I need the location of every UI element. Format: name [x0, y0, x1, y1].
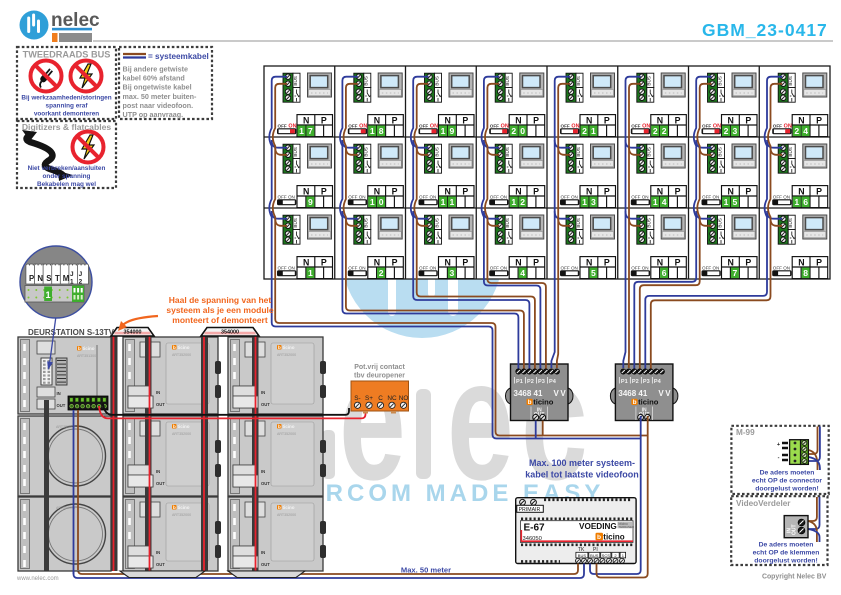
svg-text:ticino: ticino: [283, 345, 295, 350]
svg-text:OUT: OUT: [156, 562, 165, 567]
svg-text:IN: IN: [261, 390, 265, 395]
svg-text:ticino: ticino: [533, 397, 554, 406]
svg-text:IN: IN: [156, 550, 160, 555]
svg-text:N: N: [798, 258, 804, 268]
svg-text:OFF ON: OFF ON: [348, 265, 365, 270]
svg-text:BUS: BUS: [576, 218, 581, 227]
svg-text:echt OP de connector: echt OP de connector: [752, 478, 822, 485]
svg-text:P: P: [462, 187, 468, 197]
svg-text:N: N: [515, 258, 521, 268]
svg-text:P: P: [604, 258, 610, 268]
svg-text:2: 2: [794, 126, 799, 136]
svg-text:GBM_23-0417: GBM_23-0417: [702, 20, 828, 40]
svg-text:OFF ON: OFF ON: [419, 194, 436, 199]
svg-text:IN: IN: [261, 469, 265, 474]
svg-text:BUS: BUS: [434, 218, 439, 227]
svg-text:BUS: BUS: [576, 147, 581, 156]
svg-text:OFF: OFF: [561, 123, 570, 128]
svg-text:7: 7: [733, 268, 738, 278]
svg-text:6: 6: [803, 197, 808, 207]
svg-text:4: 4: [520, 268, 525, 278]
svg-text:N: N: [303, 258, 309, 268]
svg-text:OFF ON: OFF ON: [702, 265, 719, 270]
svg-text:echt OP de klemmen: echt OP de klemmen: [753, 550, 820, 557]
svg-text:b: b: [173, 345, 176, 350]
svg-text:354000: 354000: [221, 329, 239, 335]
svg-text:P: P: [462, 116, 468, 126]
svg-text:4: 4: [803, 126, 808, 136]
svg-text:ART351300: ART351300: [77, 354, 96, 358]
svg-text:ticino: ticino: [603, 532, 624, 541]
svg-text:IN: IN: [57, 391, 61, 396]
svg-text:4: 4: [662, 197, 667, 207]
svg-text:N: N: [798, 116, 804, 126]
svg-text:P: P: [675, 258, 681, 268]
svg-text:1: 1: [370, 197, 375, 207]
svg-text:OFF ON: OFF ON: [490, 194, 507, 199]
svg-text:P: P: [816, 116, 822, 126]
svg-text:2: 2: [653, 126, 658, 136]
svg-text:www.nelec.com: www.nelec.com: [16, 576, 59, 582]
svg-text:P3: P3: [643, 379, 650, 385]
svg-text:+: +: [777, 442, 780, 448]
svg-text:N: N: [657, 187, 663, 197]
svg-text:2: 2: [724, 126, 729, 136]
svg-text:ticino: ticino: [283, 424, 295, 429]
svg-text:ticino: ticino: [283, 505, 295, 510]
svg-text:BUS: BUS: [647, 76, 652, 85]
svg-text:VV: VV: [658, 389, 672, 398]
svg-text:ART352000: ART352000: [172, 513, 191, 517]
svg-text:OFF: OFF: [419, 123, 428, 128]
svg-text:P: P: [321, 258, 327, 268]
svg-text:TWEEDRAADS BUS: TWEEDRAADS BUS: [23, 50, 111, 60]
svg-text:N: N: [37, 274, 43, 283]
svg-text:VV: VV: [554, 389, 568, 398]
svg-text:OUT: OUT: [792, 524, 798, 535]
svg-text:b: b: [278, 345, 281, 350]
svg-text:VideoVerdeler: VideoVerdeler: [736, 499, 791, 508]
svg-text:UTP op aanvraag.: UTP op aanvraag.: [123, 110, 184, 119]
svg-text:OUT: OUT: [261, 481, 270, 486]
svg-text:S-: S-: [354, 395, 360, 402]
svg-text:N: N: [445, 116, 451, 126]
svg-text:P: P: [321, 116, 327, 126]
svg-text:BUS: BUS: [364, 76, 369, 85]
svg-text:BUS: BUS: [788, 218, 793, 227]
svg-text:ticino: ticino: [178, 424, 190, 429]
svg-text:BUS: BUS: [576, 76, 581, 85]
svg-text:P4: P4: [549, 379, 557, 385]
svg-text:BUS: BUS: [434, 76, 439, 85]
svg-text:BUS: BUS: [717, 218, 722, 227]
svg-text:PRIMAIR: PRIMAIR: [519, 507, 541, 513]
svg-text:b: b: [173, 505, 176, 510]
svg-text:P4: P4: [654, 379, 662, 385]
svg-text:OFF ON: OFF ON: [348, 194, 365, 199]
svg-text:systeem als je een module: systeem als je een module: [166, 305, 274, 315]
svg-text:OFF ON: OFF ON: [773, 194, 790, 199]
svg-text:Bekabelen mag wel: Bekabelen mag wel: [37, 181, 96, 188]
svg-text:S: S: [46, 274, 51, 283]
svg-text:N: N: [374, 116, 380, 126]
svg-text:BUS: BUS: [578, 553, 587, 558]
svg-text:N: N: [445, 258, 451, 268]
svg-text:N: N: [515, 116, 521, 126]
svg-text:BUS: BUS: [505, 218, 510, 227]
svg-text:OFF: OFF: [773, 123, 782, 128]
svg-text:b: b: [173, 424, 176, 429]
svg-text:P: P: [392, 258, 398, 268]
svg-text:P: P: [816, 187, 822, 197]
svg-text:monteert of demonteert: monteert of demonteert: [172, 315, 268, 325]
svg-text:P: P: [745, 187, 751, 197]
svg-text:-: -: [778, 455, 780, 461]
svg-text:OFF ON: OFF ON: [490, 265, 507, 270]
svg-text:IN: IN: [261, 550, 265, 555]
svg-text:P: P: [533, 116, 539, 126]
svg-text:BUS: BUS: [647, 218, 652, 227]
svg-text:1: 1: [441, 126, 446, 136]
svg-text:6: 6: [662, 268, 667, 278]
svg-text:1: 1: [511, 197, 516, 207]
svg-text:De aders moeten: De aders moeten: [759, 542, 814, 549]
svg-text:b: b: [597, 534, 601, 541]
svg-text:Pot.vrij contact: Pot.vrij contact: [354, 364, 405, 371]
svg-text:P: P: [321, 187, 327, 197]
svg-text:BUS: BUS: [717, 76, 722, 85]
svg-text:Copyright Nelec BV: Copyright Nelec BV: [762, 574, 827, 581]
svg-text:TERRANEO: TERRANEO: [619, 525, 635, 529]
svg-text:Max. 100 meter systeem-: Max. 100 meter systeem-: [529, 458, 635, 468]
svg-text:5: 5: [591, 268, 596, 278]
svg-text:N: N: [657, 258, 663, 268]
svg-text:N: N: [586, 258, 592, 268]
svg-text:BUS: BUS: [505, 147, 510, 156]
svg-text:ART352000: ART352000: [172, 432, 191, 436]
svg-text:OFF ON: OFF ON: [773, 265, 790, 270]
svg-text:P: P: [29, 274, 34, 283]
svg-text:1: 1: [441, 197, 446, 207]
svg-text:P: P: [745, 258, 751, 268]
svg-text:P1: P1: [516, 379, 523, 385]
svg-text:doorgelust worden!: doorgelust worden!: [754, 558, 817, 565]
svg-text:N: N: [374, 258, 380, 268]
svg-text:OFF: OFF: [631, 123, 640, 128]
svg-text:= systeemkabel: = systeemkabel: [148, 52, 209, 61]
svg-text:NO: NO: [399, 395, 409, 402]
svg-text:P: P: [675, 116, 681, 126]
svg-text:Bij andere getwiste: Bij andere getwiste: [123, 65, 189, 74]
svg-text:doorgelust worden!: doorgelust worden!: [755, 486, 818, 493]
svg-text:OFF ON: OFF ON: [419, 265, 436, 270]
svg-text:max. 50 meter buiten-: max. 50 meter buiten-: [123, 92, 198, 101]
svg-text:post naar videofoon.: post naar videofoon.: [123, 101, 194, 110]
svg-text:BUS: BUS: [434, 147, 439, 156]
svg-text:N: N: [728, 116, 734, 126]
svg-text:OFF ON: OFF ON: [278, 194, 295, 199]
svg-text:8: 8: [379, 126, 384, 136]
svg-text:b: b: [278, 505, 281, 510]
svg-text:BUS: BUS: [647, 147, 652, 156]
svg-text:P: P: [392, 116, 398, 126]
svg-text:P: P: [816, 258, 822, 268]
svg-text:OUT: OUT: [261, 562, 270, 567]
svg-text:ART352000: ART352000: [277, 353, 296, 357]
svg-text:N: N: [303, 116, 309, 126]
svg-text:OFF: OFF: [348, 123, 357, 128]
svg-text:T: T: [55, 274, 60, 283]
svg-text:P: P: [604, 187, 610, 197]
svg-text:S+: S+: [365, 395, 373, 402]
svg-text:BUS: BUS: [293, 218, 298, 227]
svg-text:N: N: [586, 187, 592, 197]
svg-text:OFF ON: OFF ON: [631, 265, 648, 270]
svg-text:1: 1: [299, 126, 304, 136]
svg-text:kabel tot laatste videofoon: kabel tot laatste videofoon: [525, 470, 639, 480]
svg-text:P: P: [675, 187, 681, 197]
svg-text:IN: IN: [156, 390, 160, 395]
svg-text:OUT: OUT: [156, 402, 165, 407]
svg-text:N: N: [798, 187, 804, 197]
svg-text:OFF: OFF: [490, 123, 499, 128]
svg-text:N: N: [586, 116, 592, 126]
svg-text:De aders moeten: De aders moeten: [760, 470, 815, 477]
svg-text:2: 2: [379, 268, 384, 278]
svg-text:9: 9: [308, 197, 313, 207]
svg-text:OFF ON: OFF ON: [278, 265, 295, 270]
svg-text:Bij ongetwiste kabel: Bij ongetwiste kabel: [123, 83, 192, 92]
svg-text:3: 3: [450, 268, 455, 278]
svg-text:NC: NC: [387, 395, 397, 402]
svg-text:5: 5: [733, 197, 738, 207]
svg-text:ticino: ticino: [83, 346, 95, 351]
svg-text:Niet verbreken/aansluiten: Niet verbreken/aansluiten: [28, 165, 106, 172]
svg-text:voorkant demonteren: voorkant demonteren: [34, 111, 99, 118]
svg-text:tbv deuropener: tbv deuropener: [354, 373, 405, 380]
svg-text:P3: P3: [538, 379, 545, 385]
svg-text:kabel 60% afstand: kabel 60% afstand: [123, 74, 185, 83]
svg-text:N: N: [303, 187, 309, 197]
svg-text:onder spanning: onder spanning: [43, 173, 91, 180]
svg-text:OFF ON: OFF ON: [561, 265, 578, 270]
svg-text:ticino: ticino: [178, 345, 190, 350]
svg-text:b: b: [528, 399, 532, 406]
svg-text:9: 9: [450, 126, 455, 136]
svg-text:VOEDING: VOEDING: [579, 522, 617, 531]
svg-text:2: 2: [511, 126, 516, 136]
svg-text:SCS: SCS: [602, 553, 611, 558]
svg-text:1: 1: [582, 197, 587, 207]
svg-text:2: 2: [79, 279, 83, 286]
svg-text:ART352000: ART352000: [277, 513, 296, 517]
svg-text:1: 1: [370, 126, 375, 136]
svg-text:BUS: BUS: [788, 147, 793, 156]
svg-text:1: 1: [308, 268, 313, 278]
svg-text:2: 2: [582, 126, 587, 136]
svg-text:IN: IN: [156, 469, 160, 474]
svg-text:b: b: [633, 399, 637, 406]
svg-text:3: 3: [733, 126, 738, 136]
svg-text:1: 1: [653, 197, 658, 207]
svg-text:7: 7: [308, 126, 313, 136]
svg-text:OFF ON: OFF ON: [631, 194, 648, 199]
svg-text:P: P: [533, 187, 539, 197]
svg-text:ticino: ticino: [178, 505, 190, 510]
svg-text:N: N: [374, 187, 380, 197]
svg-text:2: 2: [662, 126, 667, 136]
svg-text:P: P: [392, 187, 398, 197]
svg-text:BUS: BUS: [788, 76, 793, 85]
svg-text:354000: 354000: [124, 329, 142, 335]
svg-text:b: b: [78, 346, 81, 351]
svg-text:N: N: [728, 258, 734, 268]
svg-text:8: 8: [803, 268, 808, 278]
svg-text:1: 1: [794, 197, 799, 207]
svg-text:1: 1: [46, 290, 51, 300]
svg-text:Haal de spanning van het: Haal de spanning van het: [169, 295, 272, 305]
svg-text:N: N: [728, 187, 734, 197]
svg-text:0: 0: [520, 126, 525, 136]
svg-text:b: b: [278, 424, 281, 429]
svg-text:P: P: [745, 116, 751, 126]
svg-text:2: 2: [520, 197, 525, 207]
svg-text:M-99: M-99: [736, 428, 755, 437]
svg-text:ART352000: ART352000: [172, 353, 191, 357]
svg-text:BUS: BUS: [364, 147, 369, 156]
svg-text:ART350004: ART350004: [56, 506, 75, 510]
svg-text:J: J: [70, 271, 74, 278]
svg-text:1: 1: [724, 197, 729, 207]
svg-text:BUS: BUS: [590, 553, 599, 558]
svg-text:BUS: BUS: [717, 147, 722, 156]
svg-text:Digitizers & flatcables: Digitizers & flatcables: [22, 122, 112, 132]
svg-text:1: 1: [450, 197, 455, 207]
svg-text:P: P: [604, 116, 610, 126]
svg-text:1: 1: [591, 126, 596, 136]
svg-text:N: N: [657, 116, 663, 126]
svg-text:ticino: ticino: [638, 397, 659, 406]
svg-text:DEURSTATION S-13TV: DEURSTATION S-13TV: [28, 328, 115, 337]
svg-text:BUS: BUS: [505, 76, 510, 85]
svg-text:OUT: OUT: [57, 403, 66, 408]
svg-text:Bij werkzaamheden/storingen: Bij werkzaamheden/storingen: [21, 95, 111, 102]
svg-text:P2: P2: [632, 379, 639, 385]
svg-text:3: 3: [591, 197, 596, 207]
svg-text:0: 0: [379, 197, 384, 207]
svg-text:ART350004: ART350004: [56, 425, 75, 429]
svg-text:P: P: [533, 258, 539, 268]
svg-text:BUS: BUS: [293, 147, 298, 156]
svg-text:OUT: OUT: [261, 402, 270, 407]
svg-text:J: J: [79, 271, 83, 278]
svg-text:spanning eraf: spanning eraf: [46, 103, 89, 110]
svg-text:P: P: [462, 258, 468, 268]
svg-text:P2: P2: [527, 379, 534, 385]
svg-text:ART352000: ART352000: [277, 432, 296, 436]
svg-text:N: N: [445, 187, 451, 197]
svg-text:C: C: [378, 395, 383, 402]
svg-text:BUS: BUS: [293, 76, 298, 85]
svg-text:Max. 50 meter: Max. 50 meter: [401, 566, 451, 575]
svg-text:OFF: OFF: [702, 123, 711, 128]
svg-text:M: M: [63, 274, 70, 283]
svg-text:1: 1: [70, 279, 74, 286]
svg-text:OFF ON: OFF ON: [702, 194, 719, 199]
svg-text:P1: P1: [621, 379, 628, 385]
svg-text:OFF: OFF: [278, 123, 287, 128]
svg-text:OUT: OUT: [156, 481, 165, 486]
svg-text:346050: 346050: [523, 536, 542, 542]
svg-text:N: N: [515, 187, 521, 197]
svg-text:E-67: E-67: [524, 523, 546, 534]
svg-text:BUS: BUS: [364, 218, 369, 227]
svg-text:OFF ON: OFF ON: [561, 194, 578, 199]
